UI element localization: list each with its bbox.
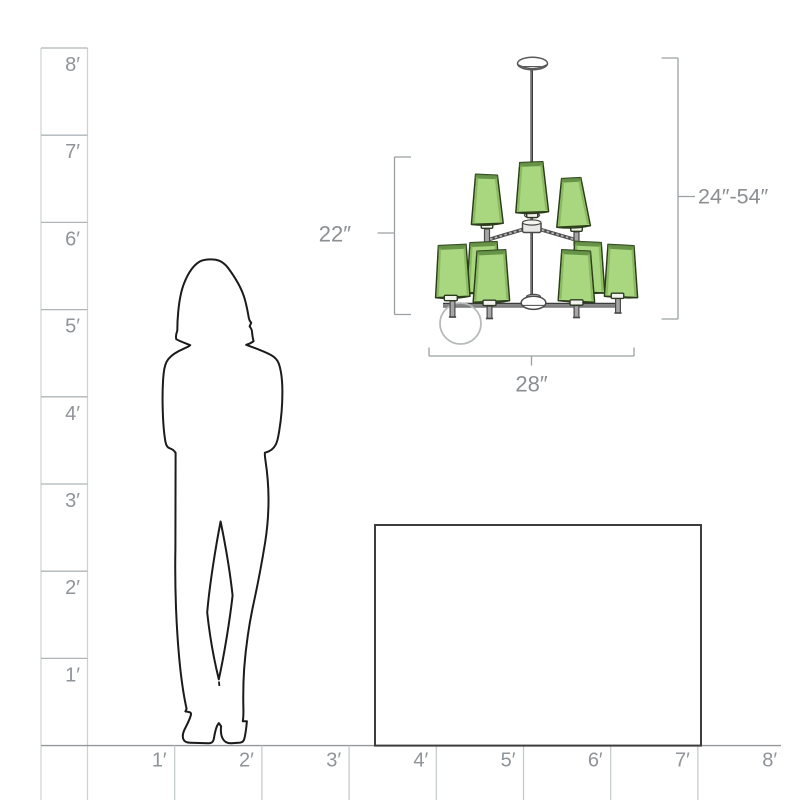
svg-text:24″-54″: 24″-54″: [698, 185, 769, 209]
svg-text:7′: 7′: [675, 750, 690, 772]
svg-text:22″: 22″: [319, 222, 351, 247]
svg-text:2′: 2′: [239, 750, 254, 772]
svg-text:7′: 7′: [65, 141, 80, 163]
svg-text:4′: 4′: [413, 750, 428, 772]
svg-text:28″: 28″: [515, 372, 547, 397]
svg-text:1′: 1′: [152, 750, 167, 772]
svg-text:1′: 1′: [65, 664, 80, 686]
svg-text:2′: 2′: [65, 577, 80, 599]
svg-text:5′: 5′: [65, 316, 80, 338]
svg-text:5′: 5′: [501, 750, 516, 772]
svg-text:4′: 4′: [65, 403, 80, 425]
svg-text:8′: 8′: [65, 54, 80, 76]
svg-text:8′: 8′: [762, 750, 777, 772]
svg-text:3′: 3′: [65, 490, 80, 512]
svg-text:6′: 6′: [588, 750, 603, 772]
svg-text:3′: 3′: [326, 750, 341, 772]
svg-text:6′: 6′: [65, 228, 80, 250]
